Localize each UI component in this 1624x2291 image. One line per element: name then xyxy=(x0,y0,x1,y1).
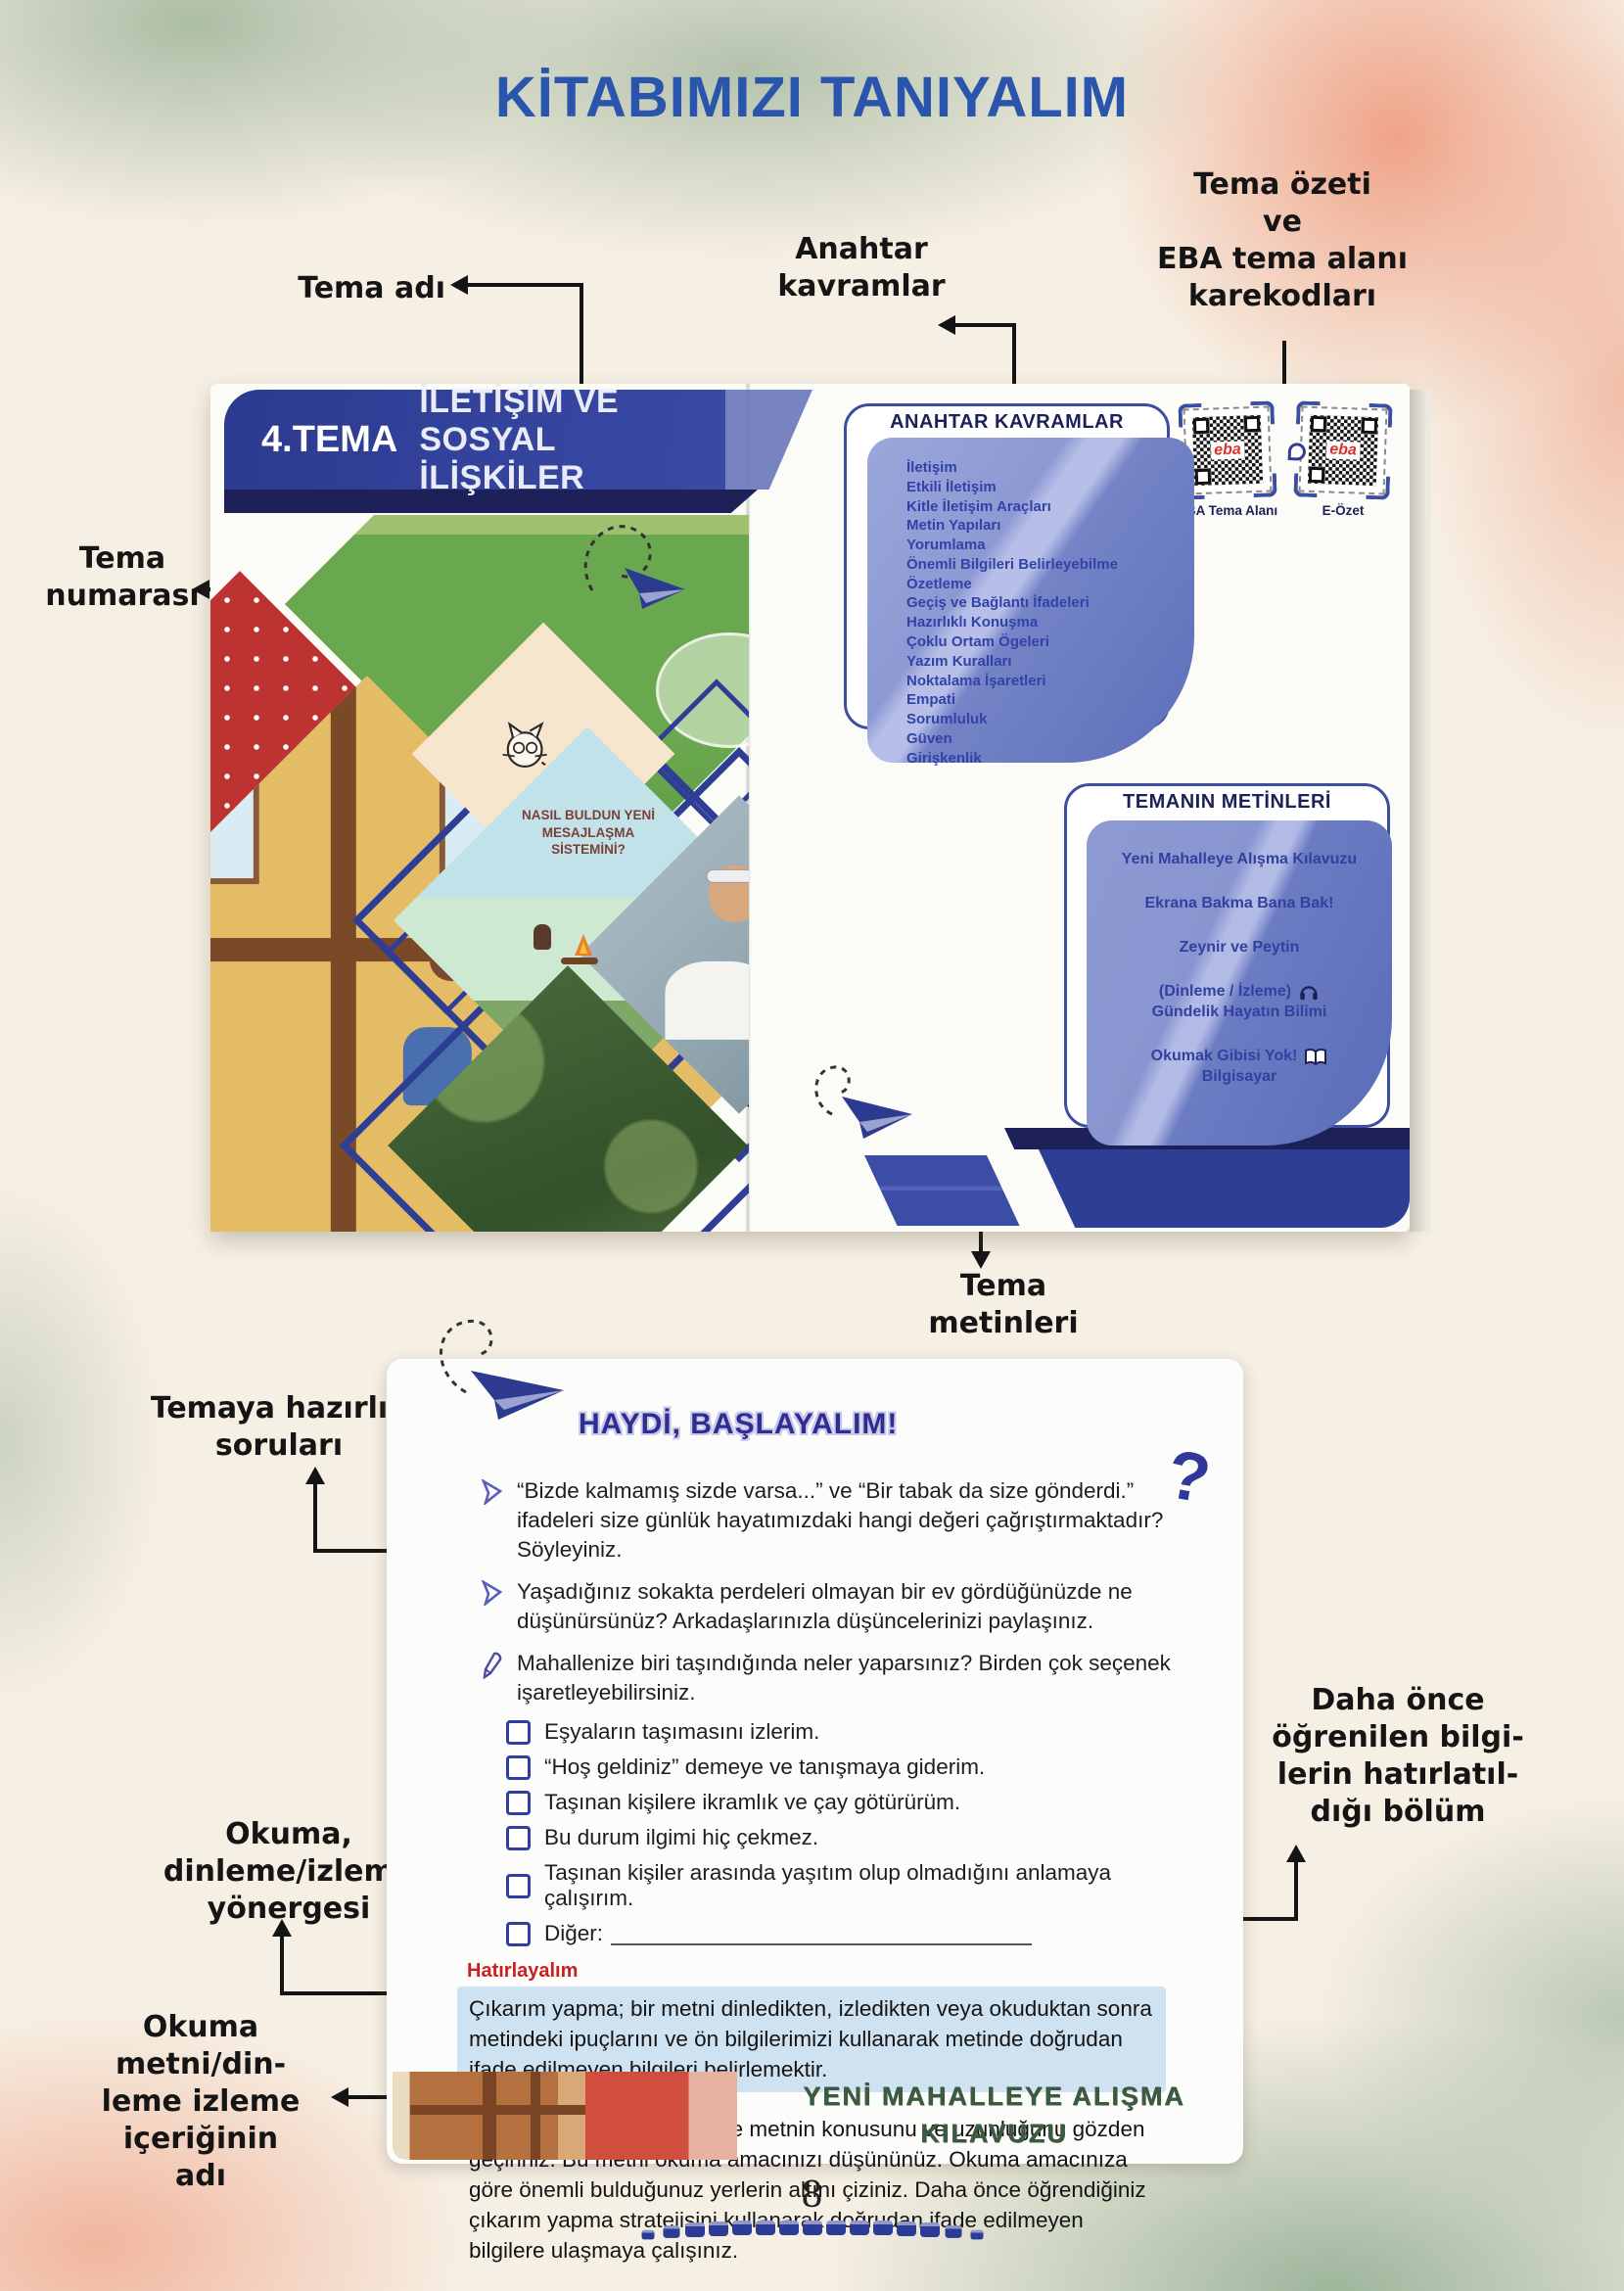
bead xyxy=(779,2221,799,2235)
qr-corner xyxy=(1293,473,1318,497)
key-concept: Önemli Bilgileri Belirleyebilme xyxy=(906,556,1194,573)
key-concept: Geçiş ve Bağlantı İfadeleri xyxy=(906,594,1194,611)
bead xyxy=(642,2230,655,2240)
pen-icon xyxy=(481,1649,504,1707)
key-concept: Metin Yapıları xyxy=(906,517,1194,534)
line xyxy=(280,1935,284,1995)
reading-text-row: YENİ MAHALLEYE ALIŞMA KILAVUZU xyxy=(393,2072,1226,2160)
key-concepts-panel: İletişim Etkili İletişim Kitle İletişim … xyxy=(867,438,1194,763)
bead xyxy=(873,2221,893,2235)
annotation-reading-content-name: Okuma metni/din- leme izleme içeriğinin … xyxy=(69,2009,333,2195)
key-concept: Empati xyxy=(906,691,1194,708)
bead xyxy=(850,2221,869,2235)
qr-corner xyxy=(1178,403,1202,428)
annotation-prior-knowledge: Daha önce öğrenilen bilgi- lerin hatırla… xyxy=(1241,1682,1554,1831)
theme-text-listening: (Dinleme / İzleme) Gündelik Hayatın Bili… xyxy=(1152,981,1327,1023)
option-label: Taşınan kişilere ikramlık ve çay götürür… xyxy=(544,1790,960,1815)
option-label: Diğer: xyxy=(544,1921,603,1946)
qr-e-summary: eba E-Özet xyxy=(1300,407,1388,518)
line xyxy=(313,1482,317,1553)
bead xyxy=(732,2221,752,2235)
qr-frame: eba xyxy=(1298,405,1387,494)
reading-text-image xyxy=(393,2072,737,2160)
annotation-key-concepts: Anahtar kavramlar xyxy=(739,231,984,305)
key-concept: Özetleme xyxy=(906,576,1194,592)
key-concepts-title: ANAHTAR KAVRAMLAR xyxy=(844,411,1170,434)
theme-text: Zeynir ve Peytin xyxy=(1180,938,1300,958)
paper-plane-doodle xyxy=(373,1294,579,1431)
page-edge-shadow xyxy=(1410,390,1431,1232)
qr-frame: eba xyxy=(1183,405,1272,494)
key-concept: Güven xyxy=(906,730,1194,747)
prep-question: Yaşadığınız sokakta perdeleri olmayan bi… xyxy=(481,1577,1172,1636)
book-right-page: ANAHTAR KAVRAMLAR İletişim Etkili İletiş… xyxy=(749,384,1410,1232)
theme-text: Yeni Mahalleye Alışma Kılavuzu xyxy=(1122,850,1357,870)
bead xyxy=(971,2230,984,2240)
option-row-other: Diğer: xyxy=(506,1921,1172,1946)
key-concept: Kitle İletişim Araçları xyxy=(906,498,1194,515)
theme-text-label: Okumak Gibisi Yok! xyxy=(1151,1047,1298,1067)
eba-logo: eba xyxy=(1211,441,1244,459)
bead xyxy=(756,2221,775,2235)
arrowhead xyxy=(971,1251,991,1269)
window-frame xyxy=(483,2072,496,2160)
option-row: Taşınan kişilere ikramlık ve çay götürür… xyxy=(506,1790,1172,1815)
paper-plane-doodle xyxy=(803,1046,920,1148)
option-label: Eşyaların taşımasını izlerim. xyxy=(544,1719,819,1745)
remember-title: Hatırlayalım xyxy=(467,1960,1172,1983)
eba-logo: eba xyxy=(1326,441,1360,459)
key-concepts-list: İletişim Etkili İletişim Kitle İletişim … xyxy=(867,438,1194,767)
theme-title: İLETİŞİM VE SOSYAL İLİŞKİLER xyxy=(419,383,725,497)
qr-corner xyxy=(1296,400,1321,425)
qr-corner xyxy=(1250,400,1275,425)
paper-plane-icon xyxy=(471,1371,564,1420)
chevron-icon xyxy=(481,1577,504,1636)
worksheet-heading: HAYDİ, BAŞLAYALIM! xyxy=(579,1408,898,1441)
qr-corner xyxy=(1369,403,1393,428)
bead xyxy=(709,2221,728,2236)
question-text: “Bizde kalmamış sizde varsa...” ve “Bir … xyxy=(517,1476,1172,1565)
bead xyxy=(803,2221,822,2235)
question-text: Mahallenize biri taşındığında neler yapa… xyxy=(517,1649,1172,1707)
man-shirt xyxy=(666,962,749,1041)
book-left-page: 4.TEMA İLETİŞİM VE SOSYAL İLİŞKİLER xyxy=(210,384,749,1232)
checkbox[interactable] xyxy=(506,1826,531,1850)
bead xyxy=(897,2221,916,2236)
window-frame xyxy=(531,2072,540,2160)
theme-banner: 4.TEMA İLETİŞİM VE SOSYAL İLİŞKİLER xyxy=(224,390,725,490)
footer-band xyxy=(996,1149,1410,1228)
key-concept: Çoklu Ortam Ögeleri xyxy=(906,633,1194,650)
checkbox[interactable] xyxy=(506,1720,531,1745)
annotation-theme-number: Tema numarası xyxy=(29,540,215,615)
paper-plane-icon xyxy=(625,568,685,609)
chevron-icon xyxy=(481,1476,504,1565)
theme-text-reading: Okumak Gibisi Yok! Bilgisayar xyxy=(1151,1047,1328,1088)
campfire-log xyxy=(561,958,598,964)
man-headband xyxy=(706,869,749,883)
theme-number-label: 4.TEMA xyxy=(261,419,397,461)
qr-label: E-Özet xyxy=(1279,503,1407,518)
option-label: “Hoş geldiniz” demeye ve tanışmaya gider… xyxy=(544,1754,985,1780)
prep-question: “Bizde kalmamış sizde varsa...” ve “Bir … xyxy=(481,1476,1172,1565)
theme-text-label: Gündelik Hayatın Bilimi xyxy=(1152,1004,1327,1020)
arrowhead xyxy=(192,580,209,599)
collage-caption: NASIL BULDUN YENİ MESAJLAŞMA SİSTEMİNİ? xyxy=(499,807,677,859)
option-label: Bu durum ilgimi hiç çekmez. xyxy=(544,1825,818,1850)
theme-text-label: (Dinleme / İzleme) xyxy=(1159,982,1291,1003)
option-row: Bu durum ilgimi hiç çekmez. xyxy=(506,1825,1172,1850)
prep-question: Mahallenize biri taşındığında neler yapa… xyxy=(481,1649,1172,1707)
campfire-person xyxy=(534,924,551,950)
window-frame xyxy=(410,2105,586,2115)
option-row: Taşınan kişiler arasında yaşıtım olup ol… xyxy=(506,1860,1172,1911)
qr-eba-theme: eba EBA Tema Alanı xyxy=(1184,407,1273,518)
line xyxy=(1294,1860,1298,1921)
line xyxy=(466,283,583,287)
checkbox[interactable] xyxy=(506,1874,531,1898)
page-title: KİTABIMIZI TANIYALIM xyxy=(495,65,1129,130)
bead xyxy=(685,2222,705,2237)
question-text: Yaşadığınız sokakta perdeleri olmayan bi… xyxy=(517,1577,1172,1636)
key-concept: İletişim xyxy=(906,459,1194,476)
other-answer-line[interactable] xyxy=(611,1922,1032,1945)
key-concept: Yorumlama xyxy=(906,537,1194,553)
speech-bubble-icon xyxy=(1288,443,1307,461)
options-list: Eşyaların taşımasını izlerim. “Hoş geldi… xyxy=(506,1719,1172,1946)
bead xyxy=(946,2225,962,2238)
book-spread: 4.TEMA İLETİŞİM VE SOSYAL İLİŞKİLER xyxy=(210,384,1410,1232)
paper-plane-doodle xyxy=(568,515,695,615)
key-concept: Hazırlıklı Konuşma xyxy=(906,614,1194,631)
theme-texts-panel: Yeni Mahalleye Alışma Kılavuzu Ekrana Ba… xyxy=(1087,820,1392,1145)
page-number: 8 xyxy=(801,2175,823,2216)
bead xyxy=(664,2225,680,2238)
annotation-theme-texts: Tema metinleri xyxy=(881,1268,1126,1342)
key-concept: Etkili İletişim xyxy=(906,479,1194,495)
option-row: Eşyaların taşımasını izlerim. xyxy=(506,1719,1172,1745)
open-book-icon xyxy=(1304,1048,1327,1067)
option-row: “Hoş geldiniz” demeye ve tanışmaya gider… xyxy=(506,1754,1172,1780)
theme-text: Ekrana Bakma Bana Bak! xyxy=(1145,894,1334,914)
key-concept: Noktalama İşaretleri xyxy=(906,673,1194,689)
annotation-theme-name: Tema adı xyxy=(201,270,445,307)
bead xyxy=(920,2222,940,2237)
checkbox[interactable] xyxy=(506,1791,531,1815)
bead xyxy=(826,2221,846,2235)
qr-corner xyxy=(1366,476,1390,500)
worksheet-card: HAYDİ, BAŞLAYALIM! ? “Bizde kalmamış siz… xyxy=(387,1359,1243,2164)
option-label: Taşınan kişiler arasında yaşıtım olup ol… xyxy=(544,1860,1172,1911)
key-concept: Girişkenlik xyxy=(906,750,1194,767)
campfire-icon xyxy=(575,934,592,956)
checkbox[interactable] xyxy=(506,1922,531,1946)
textbook-page: KİTABIMIZI TANIYALIM Tema adı Anahtar ka… xyxy=(0,0,1624,2291)
headphones-icon xyxy=(1298,981,1320,1003)
line xyxy=(953,323,1016,327)
key-concept: Yazım Kuralları xyxy=(906,653,1194,670)
qr-corner xyxy=(1253,473,1277,497)
theme-texts-title: TEMANIN METİNLERİ xyxy=(1064,791,1390,814)
theme-texts-list: Yeni Mahalleye Alışma Kılavuzu Ekrana Ba… xyxy=(1087,820,1392,1088)
key-concept: Sorumluluk xyxy=(906,711,1194,727)
checkbox[interactable] xyxy=(506,1755,531,1780)
reading-text-title: YENİ MAHALLEYE ALIŞMA KILAVUZU xyxy=(763,2079,1226,2153)
annotation-theme-summary: Tema özeti ve EBA tema alanı karekodları xyxy=(1136,166,1429,315)
theme-text-label: Bilgisayar xyxy=(1202,1068,1276,1085)
decorative-beads xyxy=(638,2221,987,2235)
theme-collage: NASIL BULDUN YENİ MESAJLAŞMA SİSTEMİNİ? xyxy=(210,515,749,1232)
